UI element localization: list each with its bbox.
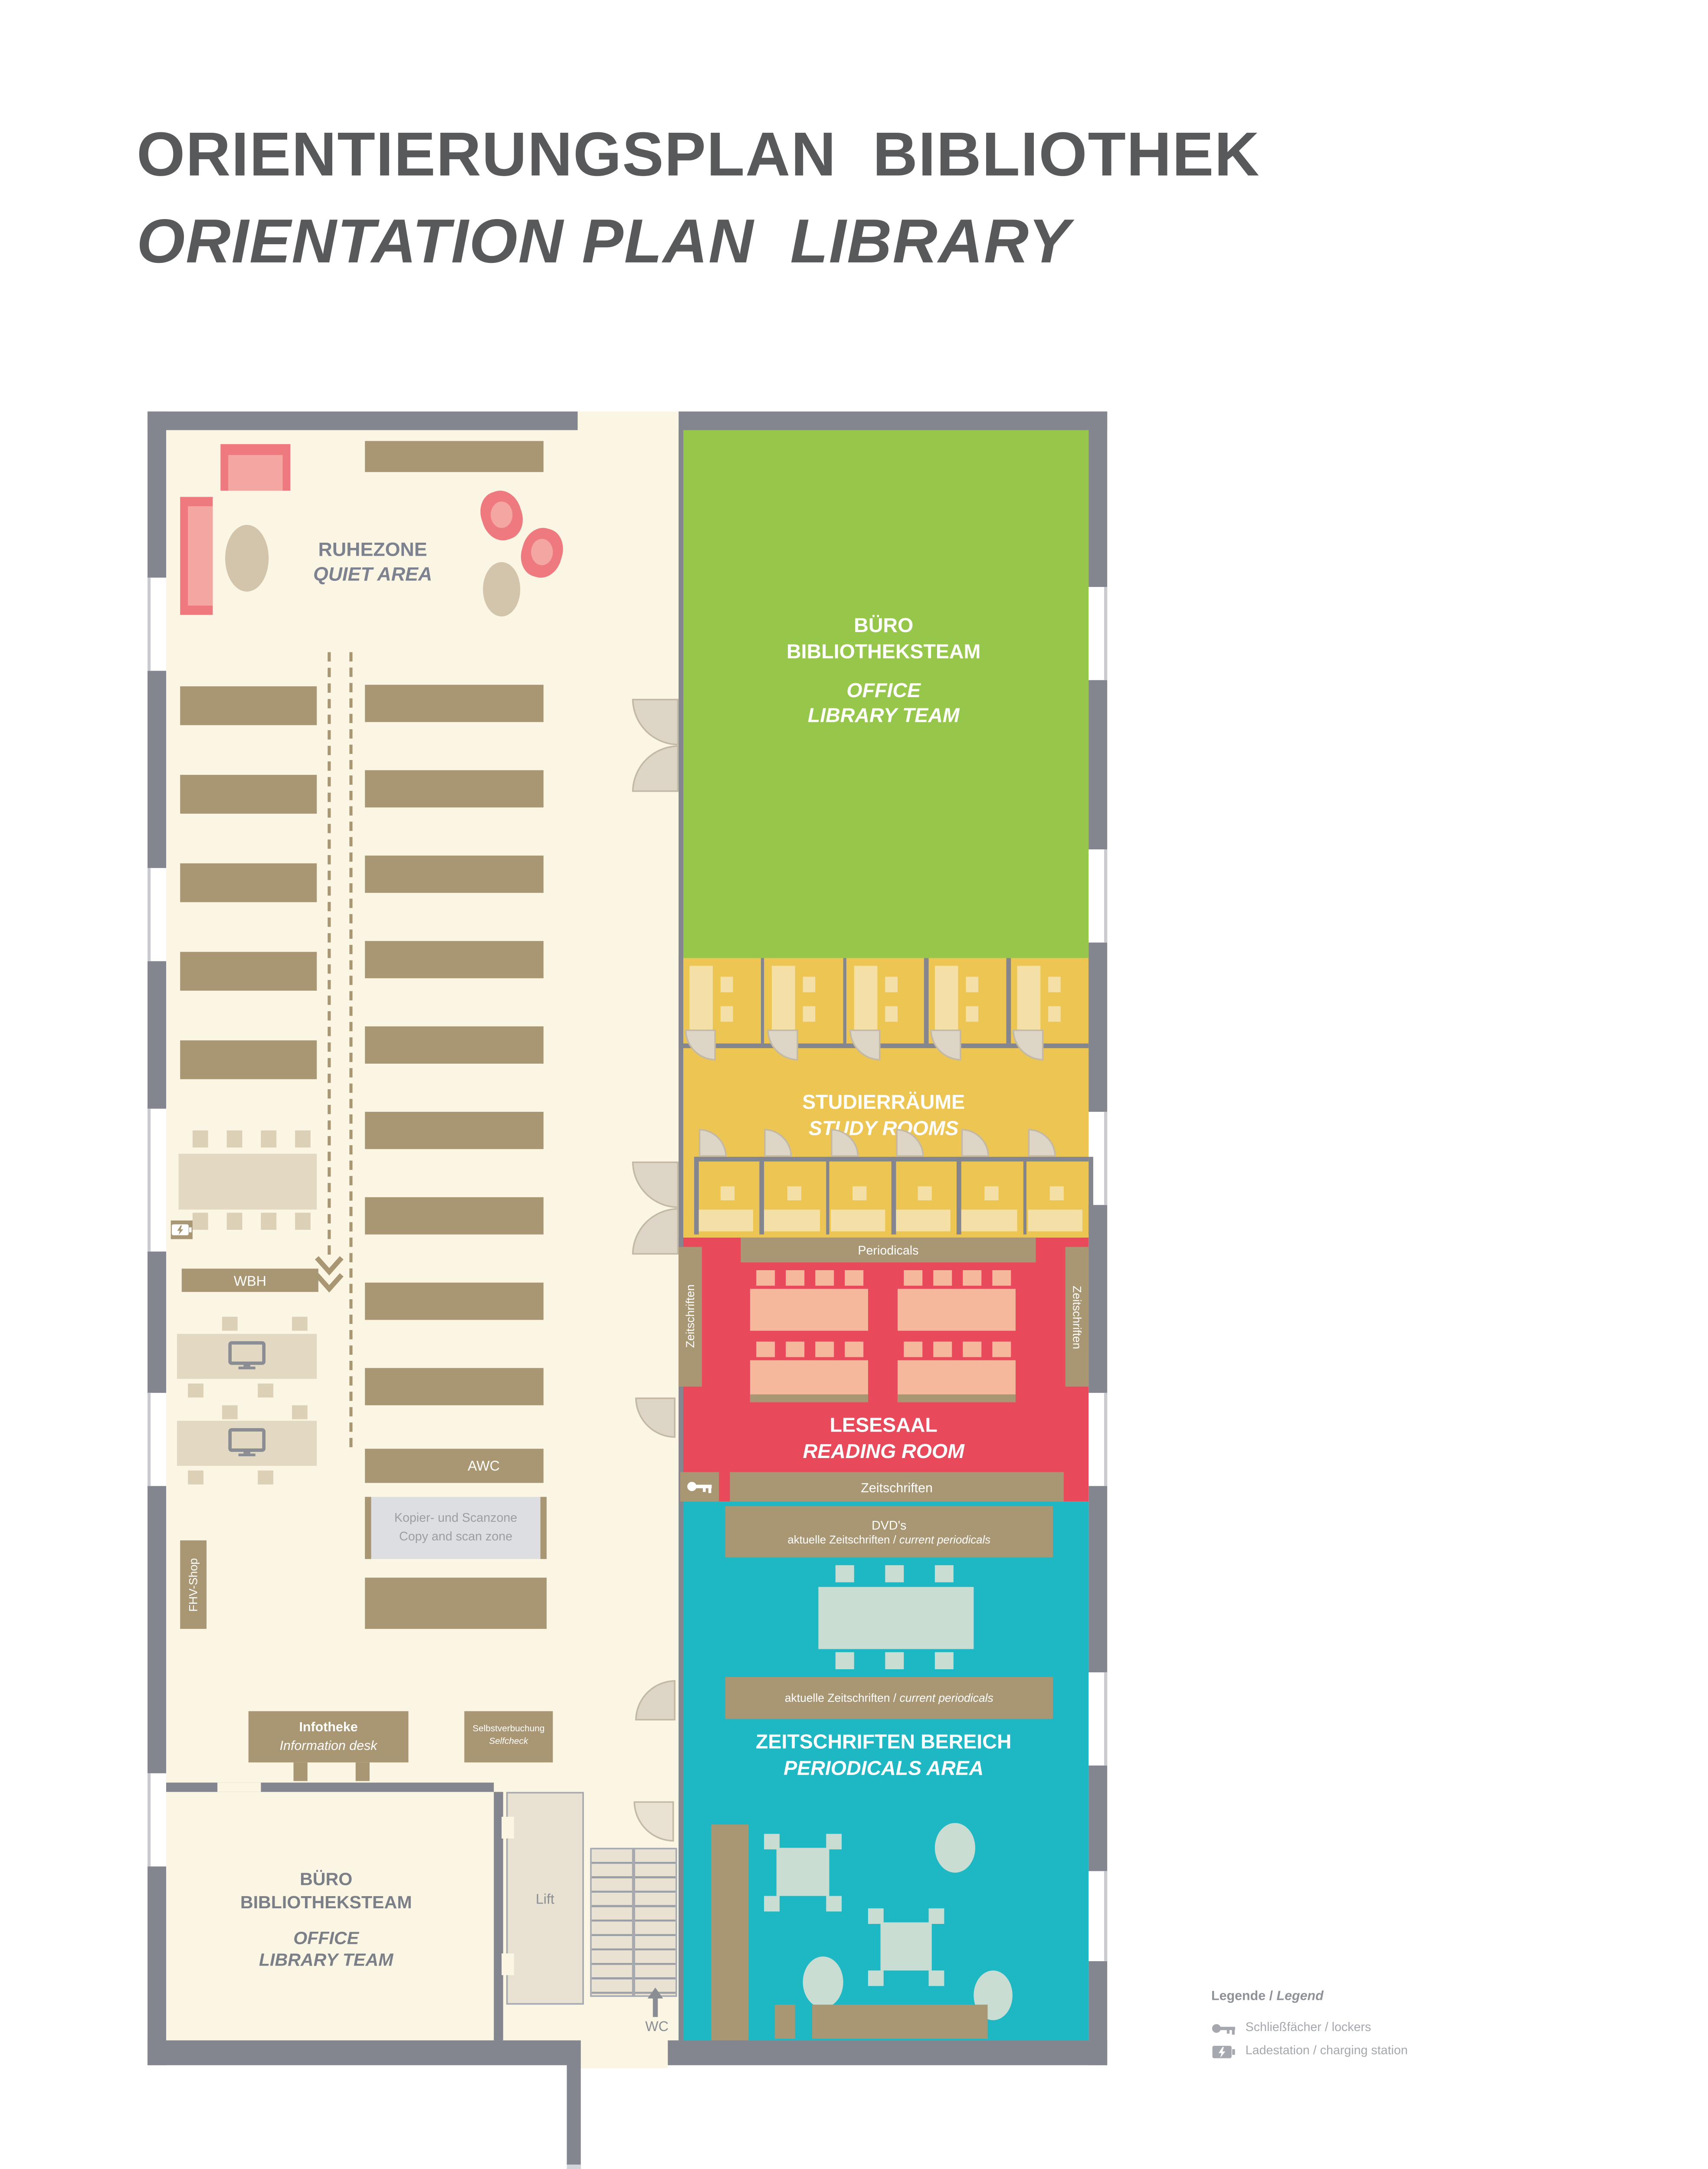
page-title-en: ORIENTATION PLAN LIBRARY bbox=[137, 208, 1071, 278]
periodicals-table bbox=[818, 1587, 974, 1649]
chair bbox=[992, 1342, 1011, 1357]
window-frame-line bbox=[1104, 849, 1107, 943]
window-frame-line bbox=[148, 1773, 151, 1867]
chair bbox=[227, 1130, 243, 1147]
study-desk bbox=[962, 1209, 1016, 1231]
corridor-exit-gap bbox=[581, 2040, 668, 2068]
copy-scan-label-de: Kopier- und Scanzone bbox=[394, 1509, 517, 1528]
lift-notch bbox=[502, 1953, 514, 1975]
study-room-wall bbox=[892, 1157, 895, 1235]
wc-arrow-up-icon bbox=[648, 1988, 663, 2017]
chair bbox=[836, 1652, 854, 1669]
zeitschriften-shelf-left: Zeitschriften bbox=[679, 1247, 702, 1386]
periodicals-area-de: ZEITSCHRIFTEN BEREICH bbox=[756, 1730, 1011, 1756]
study-room-wall bbox=[1006, 958, 1010, 1044]
selfcheck-station: Selbstverbuchung Selfcheck bbox=[464, 1711, 553, 1763]
chair bbox=[1049, 977, 1061, 993]
dvds-label: DVD's bbox=[872, 1518, 906, 1532]
study-desk bbox=[935, 966, 959, 1034]
sofa-cushion bbox=[228, 455, 282, 491]
orientation-plan-page: ORIENTIERUNGSPLAN BIBLIOTHEK ORIENTATION… bbox=[0, 0, 1708, 2169]
window-frame-line bbox=[148, 578, 151, 671]
desk-leg bbox=[356, 1763, 370, 1781]
lift: Lift bbox=[506, 1792, 584, 2005]
chair bbox=[885, 1565, 904, 1582]
study-room-wall bbox=[1023, 1157, 1027, 1235]
study-room-wall bbox=[1088, 958, 1092, 1044]
quiet-area-label-en: QUIET AREA bbox=[313, 562, 432, 587]
chair bbox=[826, 1896, 842, 1912]
chair bbox=[836, 1565, 854, 1582]
study-desk bbox=[853, 966, 877, 1034]
chair bbox=[826, 1834, 842, 1849]
chair bbox=[815, 1342, 834, 1357]
study-room-wall bbox=[761, 958, 764, 1044]
chair bbox=[885, 977, 897, 993]
chair bbox=[868, 1908, 884, 1924]
chair bbox=[904, 1270, 922, 1286]
copy-scan-label-en: Copy and scan zone bbox=[399, 1528, 512, 1546]
reading-label-de: LESESAAL bbox=[830, 1413, 938, 1439]
cafe-table bbox=[777, 1848, 829, 1896]
chair bbox=[292, 1317, 308, 1330]
dvd-periodicals-shelf: DVD's aktuelle Zeitschriften / current p… bbox=[725, 1506, 1053, 1557]
table-base bbox=[898, 1394, 1016, 1402]
magazine-shelf-vertical bbox=[711, 1825, 748, 2041]
zeitschriften-shelf-right: Zeitschriften bbox=[1065, 1247, 1089, 1386]
study-desk bbox=[689, 966, 713, 1034]
office-library-team-top-label: BÜRO BIBLIOTHEKSTEAM OFFICE LIBRARY TEAM bbox=[697, 598, 1070, 745]
awc-label: AWC bbox=[468, 1458, 500, 1474]
aktuelle-label-en: current periodicals bbox=[899, 1532, 990, 1546]
study-desk bbox=[896, 1209, 951, 1231]
lift-label: Lift bbox=[536, 1891, 554, 1906]
information-desk: Infotheke Information desk bbox=[249, 1711, 409, 1763]
wall-top-right bbox=[679, 412, 1107, 430]
chair bbox=[967, 1006, 979, 1022]
chair bbox=[803, 977, 815, 993]
bookshelf bbox=[365, 685, 544, 722]
chair bbox=[756, 1270, 775, 1286]
legend-heading: Legende / Legend bbox=[1211, 1988, 1324, 2003]
chair bbox=[984, 1186, 998, 1200]
entrance-gap-top bbox=[578, 412, 679, 430]
zeitschriften-label: Zeitschriften bbox=[683, 1285, 697, 1348]
bookshelf bbox=[180, 1040, 317, 1079]
chair bbox=[963, 1270, 981, 1286]
fhv-shop-label: FHV-Shop bbox=[187, 1558, 200, 1612]
periodicals-shelf: Periodicals bbox=[741, 1238, 1036, 1262]
computer-desk bbox=[177, 1421, 317, 1466]
sofa-cushion bbox=[188, 506, 213, 606]
current-periodicals-shelf: aktuelle Zeitschriften / current periodi… bbox=[725, 1677, 1053, 1719]
window-frame-line bbox=[1104, 1112, 1107, 1205]
window-frame-line bbox=[1104, 587, 1107, 680]
chair bbox=[885, 1006, 897, 1022]
bookshelf bbox=[365, 1197, 544, 1235]
chair bbox=[815, 1270, 834, 1286]
reading-label-en: READING ROOM bbox=[803, 1439, 964, 1465]
quiet-area-label-de: RUHEZONE bbox=[318, 537, 427, 562]
reading-table bbox=[179, 1154, 317, 1210]
study-room-wall bbox=[924, 958, 928, 1044]
window-frame-line bbox=[1104, 1393, 1107, 1486]
wall-bottom-right bbox=[668, 2040, 1107, 2065]
chair bbox=[918, 1186, 932, 1200]
selfcheck-label-de: Selbstverbuchung bbox=[472, 1725, 544, 1737]
legend-item-charging: Ladestation / charging station bbox=[1246, 2044, 1408, 2058]
chair bbox=[929, 1970, 944, 1986]
window-frame-line bbox=[1104, 1672, 1107, 1766]
chair bbox=[787, 1186, 800, 1200]
pouf bbox=[803, 1956, 843, 2008]
chair bbox=[222, 1405, 238, 1419]
window-frame-line bbox=[148, 1393, 151, 1486]
chair bbox=[786, 1270, 804, 1286]
office-top-en1: OFFICE bbox=[846, 678, 921, 704]
bookshelf bbox=[365, 770, 544, 807]
office-wall bbox=[166, 1782, 494, 1792]
study-desk bbox=[1027, 1209, 1082, 1231]
legend-item-lockers: Schließfächer / lockers bbox=[1246, 2020, 1371, 2034]
chair bbox=[929, 1908, 944, 1924]
corridor-door-gap bbox=[567, 2165, 581, 2169]
battery-icon bbox=[1211, 2044, 1236, 2061]
office-bottom-en1: OFFICE bbox=[293, 1928, 359, 1951]
chair bbox=[721, 977, 733, 993]
legend-heading-de: Legende / bbox=[1211, 1988, 1277, 2003]
chair bbox=[935, 1652, 954, 1669]
office-top-en2: LIBRARY TEAM bbox=[808, 704, 960, 730]
study-room-wall bbox=[843, 958, 846, 1044]
window-frame-line bbox=[1104, 1871, 1107, 1961]
chair bbox=[885, 1652, 904, 1669]
desk-leg bbox=[294, 1763, 308, 1781]
reading-room-table bbox=[750, 1289, 868, 1331]
key-icon bbox=[1211, 2022, 1236, 2038]
bookshelf bbox=[365, 1283, 544, 1320]
chair bbox=[756, 1342, 775, 1357]
magazine-shelf-bottom bbox=[812, 2005, 987, 2039]
computer-desk bbox=[177, 1334, 317, 1379]
study-desk bbox=[699, 1209, 754, 1231]
chair bbox=[803, 1006, 815, 1022]
study-room-wall bbox=[694, 1157, 698, 1235]
bookshelf bbox=[365, 1112, 544, 1149]
infotheke-label-de: Infotheke bbox=[299, 1720, 357, 1737]
lift-notch bbox=[502, 1817, 514, 1838]
study-desk bbox=[1017, 966, 1041, 1034]
stairs-divider bbox=[632, 1848, 635, 1997]
cafe-table bbox=[881, 1922, 932, 1970]
chair bbox=[193, 1213, 208, 1230]
chair bbox=[764, 1896, 780, 1912]
selfcheck-label-en: Selfcheck bbox=[489, 1737, 528, 1749]
office-door-gap bbox=[217, 1782, 261, 1792]
armchair-cushion bbox=[491, 501, 512, 528]
zeitschriften-label: Zeitschriften bbox=[861, 1479, 933, 1494]
study-desk bbox=[830, 1209, 885, 1231]
wall-bottom-left bbox=[148, 2040, 567, 2065]
chair bbox=[868, 1970, 884, 1986]
office-library-team-bottom-label: BÜRO BIBLIOTHEKSTEAM OFFICE LIBRARY TEAM bbox=[171, 1848, 482, 1995]
chair bbox=[967, 977, 979, 993]
guide-path-line bbox=[349, 652, 352, 1447]
corridor-wall-below bbox=[567, 2040, 581, 2169]
periodicals-label: Periodicals bbox=[858, 1243, 918, 1257]
chair bbox=[188, 1383, 203, 1397]
monitor-icon bbox=[228, 1340, 266, 1371]
chair bbox=[786, 1342, 804, 1357]
chair bbox=[188, 1471, 203, 1484]
office-top-de1: BÜRO bbox=[854, 613, 913, 639]
chair bbox=[295, 1213, 311, 1230]
office-bottom-de2: BIBLIOTHEKSTEAM bbox=[240, 1892, 412, 1915]
aktuelle-label-en: current periodicals bbox=[900, 1691, 993, 1705]
chair bbox=[935, 1565, 954, 1582]
fhv-shop: FHV-Shop bbox=[180, 1540, 207, 1629]
awc-shelf: AWC bbox=[365, 1449, 544, 1483]
wall-top-left bbox=[148, 412, 578, 430]
reading-room-table bbox=[898, 1289, 1016, 1331]
office-top-de2: BIBLIOTHEKSTEAM bbox=[787, 639, 980, 665]
bookshelf bbox=[180, 952, 317, 990]
bookshelf bbox=[180, 686, 317, 725]
chair bbox=[845, 1270, 863, 1286]
chair bbox=[933, 1270, 952, 1286]
study-room-wall bbox=[826, 1157, 829, 1235]
bookshelf bbox=[365, 941, 544, 978]
wc-label: WC bbox=[633, 2018, 680, 2034]
bookshelf bbox=[180, 775, 317, 813]
battery-icon bbox=[171, 1220, 193, 1239]
chair bbox=[721, 1006, 733, 1022]
reading-room-label: LESESAAL READING ROOM bbox=[679, 1405, 1088, 1473]
window-frame-line bbox=[148, 1109, 151, 1252]
bookshelf bbox=[180, 863, 317, 902]
bookshelf bbox=[365, 441, 544, 472]
chair bbox=[1049, 1186, 1063, 1200]
bookshelf bbox=[365, 1026, 544, 1064]
periodicals-area-label: ZEITSCHRIFTEN BEREICH PERIODICALS AREA bbox=[679, 1720, 1088, 1792]
chair bbox=[721, 1186, 734, 1200]
chair bbox=[1049, 1006, 1061, 1022]
wbh-shelf: WBH bbox=[182, 1268, 318, 1292]
infotheke-label-en: Information desk bbox=[280, 1737, 377, 1754]
chair bbox=[933, 1342, 952, 1357]
periodicals-area-en: PERIODICALS AREA bbox=[784, 1756, 983, 1782]
chair bbox=[261, 1130, 276, 1147]
legend-heading-en: Legend bbox=[1277, 1988, 1324, 2003]
key-icon bbox=[686, 1479, 713, 1494]
wbh-label: WBH bbox=[234, 1272, 266, 1288]
table-base bbox=[750, 1394, 868, 1402]
study-room-wall bbox=[679, 958, 682, 1044]
chair bbox=[764, 1834, 780, 1849]
study-room-wall bbox=[1088, 1157, 1092, 1235]
zeitschriften-shelf-bottom: Zeitschriften bbox=[730, 1472, 1064, 1501]
armchair-cushion bbox=[531, 539, 553, 565]
chair bbox=[258, 1471, 273, 1484]
study-room-wall bbox=[760, 1157, 764, 1235]
chair bbox=[222, 1317, 238, 1330]
chair bbox=[258, 1383, 273, 1397]
bookshelf bbox=[365, 1368, 544, 1406]
study-desk bbox=[764, 1209, 819, 1231]
chair bbox=[227, 1213, 243, 1230]
chair bbox=[193, 1130, 208, 1147]
chair bbox=[963, 1342, 981, 1357]
page-title-de: ORIENTIERUNGSPLAN BIBLIOTHEK bbox=[137, 121, 1260, 191]
study-rooms-label: STUDIERRÄUME STUDY ROOMS bbox=[679, 1082, 1088, 1150]
office-bottom-de1: BÜRO bbox=[300, 1869, 352, 1892]
zeitschriften-label: Zeitschriften bbox=[1070, 1285, 1084, 1348]
chair bbox=[904, 1342, 922, 1357]
copy-counter bbox=[365, 1578, 547, 1629]
corridor-wall bbox=[679, 430, 683, 2041]
chair bbox=[992, 1270, 1011, 1286]
quiet-area-label: RUHEZONE QUIET AREA bbox=[249, 534, 497, 590]
guide-path-line bbox=[328, 652, 331, 1255]
study-label-de: STUDIERRÄUME bbox=[802, 1090, 965, 1116]
chair bbox=[295, 1130, 311, 1147]
study-desk bbox=[771, 966, 795, 1034]
study-room-wall bbox=[957, 1157, 961, 1235]
aktuelle-label-de: aktuelle Zeitschriften / bbox=[787, 1532, 899, 1546]
bookshelf bbox=[365, 855, 544, 893]
office-bottom-en2: LIBRARY TEAM bbox=[259, 1951, 393, 1974]
chair bbox=[845, 1342, 863, 1357]
chair bbox=[292, 1405, 308, 1419]
magazine-shelf bbox=[775, 2005, 795, 2039]
window-frame-line bbox=[148, 868, 151, 961]
chair bbox=[852, 1186, 866, 1200]
monitor-icon bbox=[228, 1427, 266, 1458]
pouf bbox=[935, 1823, 975, 1873]
aktuelle-label-de: aktuelle Zeitschriften / bbox=[785, 1691, 900, 1705]
copy-scan-zone: Kopier- und Scanzone Copy and scan zone bbox=[365, 1497, 547, 1559]
charging-station-marker bbox=[171, 1220, 193, 1239]
lockers-marker bbox=[680, 1472, 719, 1501]
chair bbox=[261, 1213, 276, 1230]
